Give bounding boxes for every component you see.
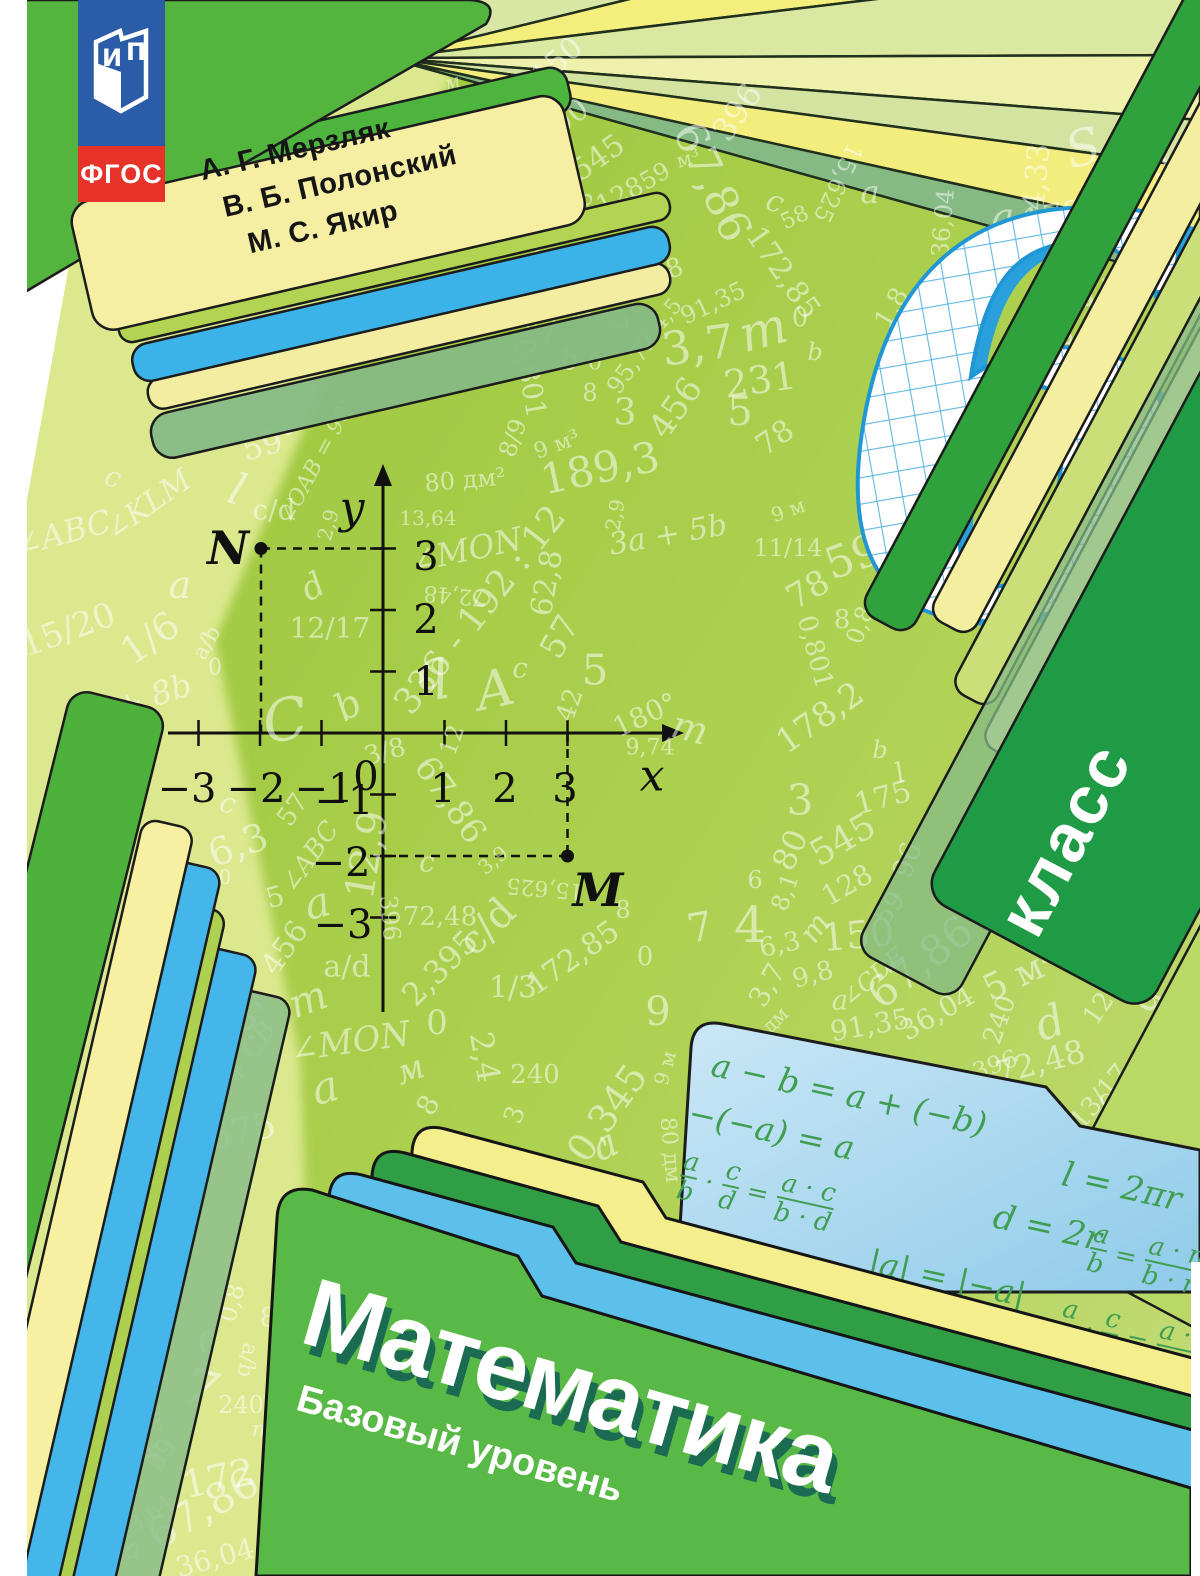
math-doodle: 3,7 [658,313,738,377]
math-doodle: m [607,218,643,258]
grade-word: класс [982,532,1200,948]
math-doodle: 0 [208,656,222,681]
formula-fraction: cd [1095,1305,1124,1365]
fraction-numerator: a [681,1146,703,1179]
formula: |a| = |−a| [861,1238,1034,1315]
pale-background [27,0,1200,1576]
math-doodle: ∠KLM [98,463,199,548]
coordinate-plane [168,464,684,1012]
point-N [255,542,268,555]
math-doodle: ∠MON [287,1014,412,1070]
formula-segment: : [1081,1314,1096,1345]
dashed-guides [261,549,568,857]
math-doodle: 178,2 [769,674,872,763]
formula: ab=a · nb · n [1079,1219,1200,1302]
math-doodle: 2 [539,273,553,298]
fgos-label: ФГОС [80,159,163,190]
point-M [561,850,574,863]
math-doodle: 9 [524,306,539,334]
yellow-tab [400,1127,1200,1576]
author-1: А. Г. Мерзляк [196,95,452,192]
math-doodle: 3,9 [473,841,513,880]
formula-segment: d = 2r [989,1197,1105,1260]
math-doodle: 172,85 [739,220,828,326]
math-doodle: 78 [749,413,800,464]
plane-label: 0 [353,754,378,800]
formula-segment: = [1123,1324,1151,1358]
plane-label: 2 [492,766,517,812]
math-doodle: 72,48 [991,1032,1089,1092]
math-doodle: 1,8 [869,283,916,334]
background-art [0,0,1200,1576]
math-doodle: 5 [727,389,752,435]
book-subtitle: Базовый уровень [292,1378,817,1567]
formula-segment: |a| = |−a| [865,1241,1030,1314]
math-doodle: 396 [374,894,406,942]
title-block: Математика Базовый уровень [277,1256,851,1566]
publisher-logo: И П [78,0,165,146]
math-doodle: м [390,1046,430,1093]
klass-tab [923,0,1200,1013]
formula-fraction: a · nb · n [1139,1233,1200,1302]
math-doodle: 59 [818,523,888,590]
math-doodle: C [1150,1114,1181,1160]
fraction-denominator: b · n [1139,1259,1200,1301]
math-doodle: m [955,338,989,367]
math-doodle: 175 [1092,136,1182,234]
math-doodle: 0 [637,942,654,972]
math-doodle: 67,86 [858,906,983,1019]
math-doodle: AC + CB [191,1016,282,1128]
book-cover: 150м10039654559м³67,86c58172,8515,625128… [0,0,1200,1576]
fraction-numerator: a · d [1157,1315,1200,1357]
publisher-corner [25,0,490,292]
plane-label: 3 [413,534,438,580]
math-doodle: 0,801 [507,336,553,421]
fraction-numerator: c [1103,1303,1124,1335]
math-doodle: 6,3 [757,926,804,964]
math-doodle: m [793,906,838,949]
math-doodle: 80 дм [655,1116,686,1184]
authors-tab [67,92,589,334]
math-doodle: l [222,464,253,517]
math-doodle: 59 [868,886,912,930]
math-doodle: a [299,876,336,930]
math-doodle: 5 [262,879,288,915]
math-doodle: a/d [323,950,370,985]
math-doodle: c [419,846,435,879]
math-doodle: l [890,756,910,790]
math-doodle: a [125,1532,142,1565]
math-doodle: c/d [252,494,295,527]
numeral-shadow: 6 [830,107,1200,754]
right-tab-stack [635,0,1200,1387]
math-doodle: c [101,459,125,495]
math-doodle: d [1028,994,1072,1052]
front-folder [256,1189,1191,1576]
math-doodle: 545 [565,127,632,189]
formula-segment: = [1112,1239,1140,1273]
math-doodle: a [306,1060,345,1116]
math-doodle: 1,8 [556,184,599,231]
math-doodle: m [1011,302,1056,344]
formula-segment: l = 2πr [1058,1154,1185,1219]
fraction-numerator: c [723,1155,744,1187]
math-doodle: a/b [232,1341,263,1379]
math-doodle: c [761,183,789,222]
math-doodle: q [407,635,454,705]
math-doodle: 6,3 [202,814,274,876]
math-doodle: 3 [498,1102,532,1128]
fraction-numerator: a · n [1146,1231,1200,1273]
left-margin [0,0,27,1576]
math-doodle: 59 [140,1433,184,1477]
math-doodle: 59 [635,156,675,196]
math-doodle: 8 [834,605,851,635]
math-doodle: 91,35 [676,276,750,330]
formula-segment: −(−a) = a [685,1093,858,1168]
formula: d = 2r [986,1194,1110,1260]
formula-fraction: ab [1084,1220,1113,1280]
math-doodle: 2,4 [462,1029,508,1086]
fraction-denominator: b · c [1150,1344,1200,1386]
fraction-denominator: d [1095,1332,1118,1365]
plane-label-layer: −3−2−11230321−1−2−3xyNM [0,0,1200,1576]
math-doodle: 240 [510,1060,560,1090]
math-doodle: 1/3 [489,971,537,1006]
math-doodle: ∠ABC [11,502,116,564]
math-doodle: c/d [894,436,976,504]
math-doodle: 9 м [768,493,809,527]
math-doodle: 80 [764,824,816,877]
math-doodle: 172,85 [178,1437,317,1508]
math-doodle: b [1064,339,1079,367]
math-doodle: ∠MON [406,520,525,581]
math-doodle: 36,04 [894,979,980,1048]
math-doodle: 7 [176,1357,223,1424]
math-doodle: 3 [787,776,814,825]
math-doodle: 9 [645,989,670,1035]
math-doodle: 0 [426,1003,448,1043]
math-doodle: 396 [704,76,770,148]
math-doodle: 128 [1018,317,1076,357]
math-doodle: 100 [529,91,596,153]
math-doodle: c [216,785,240,821]
numeral: 6 [816,100,1200,747]
math-doodle: 2,4 [560,281,597,325]
math-doodle: 456 [641,370,711,446]
formula: ab·cd=a · cb · d [669,1147,845,1239]
math-doodle: 0,8 [840,602,879,647]
math-doodle: 80 дм² [423,463,506,498]
math-doodle: 8,1 [765,869,804,914]
formula-fraction: ab [1053,1295,1082,1355]
math-doodle: m [667,702,713,754]
open-book-icon: И П [78,0,165,146]
math-doodle: 4,5 [646,294,688,337]
math-doodle: 8 [260,1303,277,1333]
math-doodle: 42 [550,684,590,725]
math-doodle: 15,625 [808,139,869,227]
math-doodle-layer: 150м10039654559м³67,86c58172,8515,625128… [0,0,1200,1576]
math-doodle: b [872,736,887,764]
authors-tab-group [25,0,700,466]
math-doodle: 4 [734,896,766,954]
math-doodle: 4a + 8b [64,665,197,741]
fraction-numerator: a · c [779,1168,839,1209]
math-doodle: m [252,1418,273,1443]
math-doodle: 396 м³ [134,1386,169,1470]
math-doodle: d [294,564,333,610]
math-doodle: 180° [607,686,682,744]
math-doodle: 62,8 [524,547,570,619]
right-margin [1191,1262,1200,1576]
author-3: М. С. Якир [244,175,470,265]
math-doodle: a [584,1119,625,1171]
math-doodle: 178,2 [1020,186,1117,239]
math-doodle: 5 м³ [977,940,1064,1010]
math-doodle: 9,8 [789,955,837,995]
math-doodle: 336 - 192 : 12 [386,498,574,723]
left-tab-stack [0,688,293,1576]
plane-label: M [573,863,624,917]
math-doodle: 59° [238,417,303,468]
plane-label: y [340,483,365,534]
math-doodle: c [512,652,528,685]
math-doodle: 6,3 [594,237,642,288]
math-doodle: 8 [409,1089,446,1121]
math-doodle: 36,04 [926,188,960,259]
math-doodle: 12 [434,721,471,759]
math-doodle: b [561,344,579,377]
math-doodle: м [441,68,463,95]
math-doodle: 3,7 [597,289,634,335]
math-doodle: 8 [615,896,630,924]
math-doodle: a [860,173,879,211]
math-doodle: 3 [614,393,637,434]
formula-panel [676,1023,1200,1292]
formula-fraction: a · cb · d [771,1169,840,1238]
grade-numeral-6: 6 6 [816,99,1200,754]
math-doodle: 67,86 [406,749,495,852]
formula: a − b = a + (−b) [704,1041,995,1144]
math-doodle: 91,35 [828,1002,913,1048]
book-title: Математика [291,1256,851,1515]
math-doodle: 36,04 [172,1532,258,1576]
math-doodle: C [257,683,313,758]
math-doodle: 78 [779,562,836,618]
math-doodle: 58 [777,201,813,235]
math-doodle: 58 [128,1068,173,1111]
formula-fraction: cd [716,1157,745,1217]
plane-label: 1 [413,659,438,705]
formula: ab:cd=a · db · c [1048,1294,1200,1386]
plane-label: −2 [227,766,286,812]
fan-stripes [300,0,1200,285]
math-doodle: a [832,984,849,1017]
fraction-numerator: a [1060,1294,1082,1327]
plane-label: 2 [413,597,438,643]
math-doodle: 91,35 [925,403,1010,476]
math-doodle: 0 [792,303,809,333]
math-doodle: 3a + 5b [606,507,730,562]
math-doodle: 9 м³ [531,425,584,465]
math-doodle: 6 [537,203,554,233]
tabs-art: 6 6 [0,0,1200,1576]
x-axis-arrow [662,724,684,742]
math-doodle: 12/17 [290,612,371,645]
math-doodle: ∠ABC [275,816,345,899]
math-doodle: 150 [820,910,896,960]
math-doodle: 12 м [1077,963,1137,1031]
green-field [215,0,1200,1576]
math-doodle: 0,801 [791,612,839,692]
math-doodle: 128 [816,857,879,912]
fraction-denominator: d [716,1184,739,1217]
math-doodle: a [1152,1054,1169,1087]
math-doodle: 9 м [649,1048,681,1088]
math-doodle: 12,9 [337,807,398,903]
math-doodle: дм [757,1002,794,1039]
math-doodle: 57 [532,608,588,665]
math-doodle: 72,48 [423,580,488,610]
math-doodle: S [230,992,265,1042]
math-doodle: 8 [582,379,597,407]
math-doodle: 9,74 [626,736,675,761]
front-folder-art [0,0,1200,1576]
formula-segment: = [744,1176,772,1210]
math-doodle: ∠OAB = 90° [274,392,362,527]
plane-label: 3 [552,766,577,812]
math-doodle: 9,8 [638,252,687,294]
math-doodle: 13/17 [1064,1059,1135,1136]
math-doodle: 0,8 [214,1281,251,1325]
math-doodle: 175 [851,774,915,823]
math-doodle: 2,395 [394,922,486,1014]
math-doodle: b [326,680,369,730]
fraction-numerator: a [1091,1219,1113,1252]
formula-panel-text: a − b = a + (−b)−(−a) = al = 2πrd = 2rab… [646,1026,1200,1391]
math-doodle: 67,86 [1144,1002,1200,1094]
fraction-denominator: b [674,1175,697,1208]
math-doodle: 95,72 [601,327,663,399]
math-doodle: 2,675 [170,1104,279,1166]
math-doodle: q [1118,983,1168,1016]
math-doodle: A [470,657,519,723]
math-doodle: 4 [549,234,587,292]
math-doodle: l [539,315,560,351]
math-doodle: 545 [803,805,883,875]
math-doodle: 172,85 [520,914,626,1003]
math-doodle: 545 [1041,266,1134,333]
math-doodle: m [282,972,333,1028]
y-axis-arrow [374,464,392,486]
fgos-badge: ФГОС [78,146,165,202]
math-doodle: a [992,195,1015,239]
math-doodle: 2,9 [312,507,343,544]
math-doodle: м³ [674,143,703,172]
formula-fraction: a · db · c [1150,1317,1200,1386]
math-doodle: 7 [683,903,716,953]
math-doodle: 3,7 [742,957,793,1012]
math-doodle: 6 [747,866,762,894]
math-doodle: a [169,563,192,607]
fraction-denominator: b [1053,1322,1076,1355]
math-doodle: 67,86 [662,114,761,250]
math-doodle: a/b [188,622,227,664]
plane-label: x [640,751,665,802]
formula-fraction: ab [674,1148,703,1208]
formula: −(−a) = a [681,1089,863,1168]
plane-label: −3 [158,766,217,812]
math-doodle: 4,33 [1017,142,1058,212]
math-doodle: 72,48 [403,902,477,932]
math-doodle: 456 [254,915,316,982]
publisher-letter-i: И [102,44,122,72]
math-doodle: 0,345 [558,1056,656,1170]
math-doodle: b [807,338,822,366]
math-doodle: 2,9 [600,497,629,532]
math-doodle: 396 [969,1044,1022,1086]
math-doodle: 150 [524,30,590,94]
formula-segment: a − b = a + (−b) [708,1044,991,1143]
math-doodle: 1/6 [112,602,187,673]
math-doodle: 96 [885,838,928,883]
math-doodle: 231 [721,353,799,407]
math-doodle: 189,3 [536,432,664,505]
authors-block: А. Г. Мерзляк В. Б. Полонский М. С. Якир [196,95,470,272]
plane-label: 1 [430,766,455,812]
math-doodle: 8/9 [493,415,533,461]
math-doodle: 240° [218,1391,276,1419]
math-doodle: 13,64 [112,1490,178,1547]
math-doodle: p [1105,201,1155,259]
math-doodle: 6 [198,1327,216,1360]
math-doodle: 67,86 [139,1457,268,1560]
math-doodle: 11/14 [753,534,822,562]
fraction-denominator: b · d [771,1196,834,1238]
math-doodle: 240 [977,992,1022,1049]
math-doodle: 128 [591,171,649,221]
math-doodle: c/d [449,889,525,965]
fraction-denominator: b [1084,1247,1107,1280]
math-doodle: S [1059,116,1107,181]
math-doodle: ∠CDE [835,942,911,1012]
publisher-letter-p: П [126,38,146,66]
math-doodle: 6,3 [910,339,957,377]
math-doodle: 15,625 [1097,1087,1183,1122]
plane-label: −1 [295,766,354,812]
formula: l = 2πr [1054,1152,1189,1221]
math-doodle: 15/20 [15,594,121,665]
formula-segment: · [702,1167,717,1198]
math-doodle: 3/8 [361,732,409,772]
plane-label: −3 [314,902,373,948]
math-doodle: 57 [271,788,315,832]
author-2: В. Б. Полонский [219,135,461,229]
math-doodle: 3 [518,231,553,280]
math-doodle: m [733,296,794,364]
math-doodle: 13,64 [399,506,456,530]
plane-label: −2 [312,840,371,886]
plane-label: −1 [315,778,374,824]
math-doodle: 5 [582,646,609,695]
plane-label: N [207,521,249,575]
math-doodle: 0 [219,865,232,889]
blue-tab [318,1173,1200,1576]
math-doodle: 15,625 [506,872,585,904]
math-doodle: 0 [588,351,602,376]
